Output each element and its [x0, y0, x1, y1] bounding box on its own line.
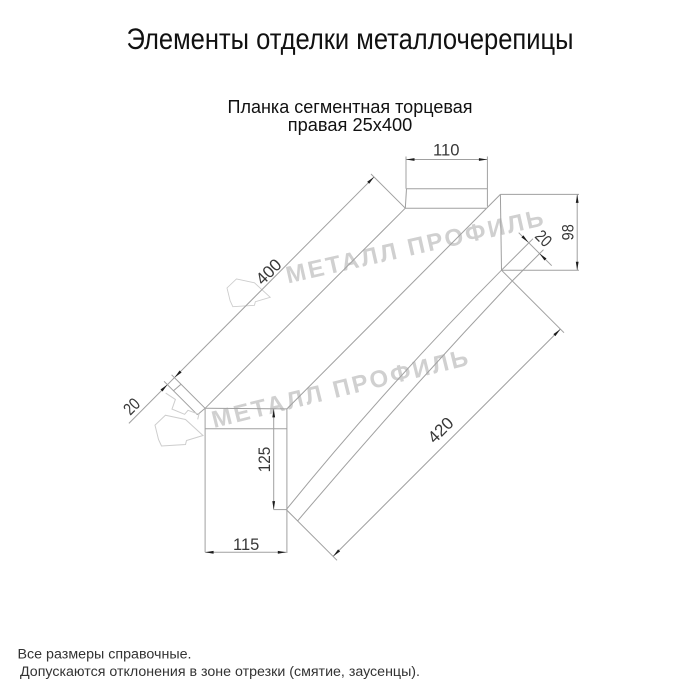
- svg-text:Все размеры справочные.: Все размеры справочные.: [18, 646, 192, 661]
- svg-text:Элементы отделки металлочерепи: Элементы отделки металлочерепицы: [127, 23, 574, 56]
- svg-text:420: 420: [424, 414, 457, 447]
- svg-text:правая 25x400: правая 25x400: [288, 115, 413, 135]
- svg-text:МЕТАЛЛ ПРОФИЛЬ: МЕТАЛЛ ПРОФИЛЬ: [209, 344, 473, 434]
- svg-text:Допускаются отклонения в зоне: Допускаются отклонения в зоне отрезки (с…: [20, 664, 420, 679]
- svg-text:400: 400: [252, 255, 285, 288]
- svg-text:20: 20: [120, 394, 144, 418]
- svg-text:Планка сегментная торцевая: Планка сегментная торцевая: [228, 97, 473, 117]
- svg-text:125: 125: [255, 447, 274, 473]
- svg-text:110: 110: [433, 141, 460, 160]
- svg-text:98: 98: [558, 224, 577, 240]
- svg-text:115: 115: [233, 535, 259, 554]
